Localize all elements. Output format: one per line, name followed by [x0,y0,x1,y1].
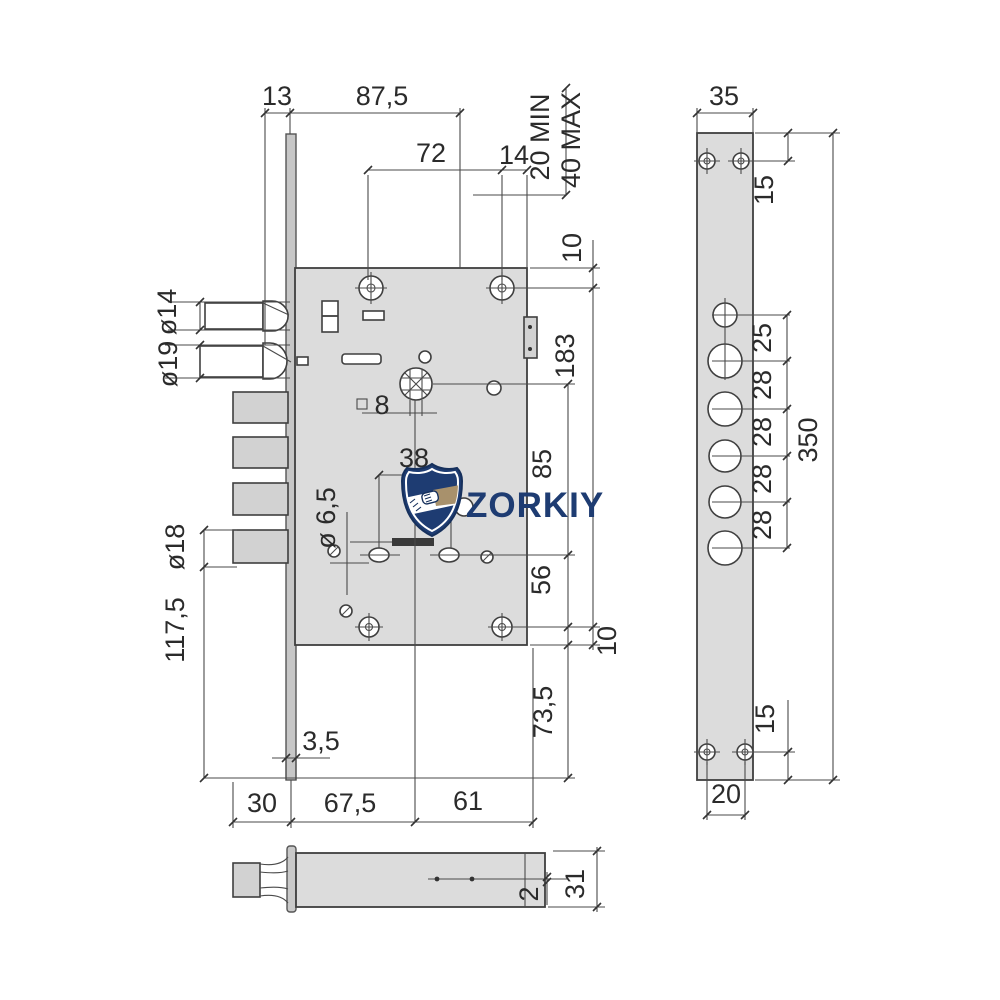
dim-gap-25: 25 [747,323,777,353]
dim-gap-28a: 28 [747,370,777,400]
lock-technical-drawing: 13 87,5 72 14 20 MIN 40 MAX 10 183 85 56… [0,0,1000,1000]
side-body [296,853,545,907]
dim-117-5: 117,5 [160,597,190,663]
dim-20: 20 [711,779,741,809]
dim-15-top: 15 [749,175,779,205]
dim-dia18: ø18 [160,524,190,571]
dim-15-bottom: 15 [750,704,780,734]
side-view: 2 31 [233,846,605,912]
dim-10-top: 10 [557,233,587,263]
dim-30: 30 [247,788,277,818]
dim-13: 13 [262,81,292,111]
svg-text:8: 8 [374,390,389,420]
dim-56: 56 [526,565,556,595]
dim-gap-28c: 28 [747,464,777,494]
dim-67-5: 67,5 [324,788,377,818]
dim-87-5: 87,5 [356,81,409,111]
dim-dia6-5: ø 6,5 [311,487,341,549]
side-faceplate-edge [287,846,296,912]
dim-dia14: ø14 [152,289,182,336]
dim-10-bottom: 10 [592,626,622,656]
dim-72: 72 [416,138,446,168]
dim-40-max: 40 MAX [556,92,586,188]
dim-61: 61 [453,786,483,816]
deadbolt-rods [233,392,288,563]
faceplate-view: 35 15 25 28 28 28 28 350 15 20 [693,81,840,820]
dim-dia19: ø19 [153,341,183,388]
edge-keeper [524,317,537,358]
dim-2: 2 [514,886,544,901]
dim-183: 183 [550,333,580,378]
dim-3-5: 3,5 [302,726,340,756]
dim-31: 31 [560,869,590,899]
brand-name: ZORKIY [466,486,604,525]
dim-gap-28d: 28 [747,510,777,540]
latch-bolt-19 [200,343,291,379]
dim-gap-28b: 28 [747,417,777,447]
dim-85: 85 [527,449,557,479]
dim-35: 35 [709,81,739,111]
side-latch [233,857,288,903]
dim-73-5: 73,5 [528,686,558,739]
lock-technical-drawing-page: 13 87,5 72 14 20 MIN 40 MAX 10 183 85 56… [0,0,1000,1000]
cylinder-slot [392,538,434,546]
latch-bolt-14 [205,301,289,331]
dim-20-min: 20 MIN [525,93,555,180]
dim-350: 350 [793,417,823,462]
front-view: 13 87,5 72 14 20 MIN 40 MAX 10 183 85 56… [152,81,622,828]
